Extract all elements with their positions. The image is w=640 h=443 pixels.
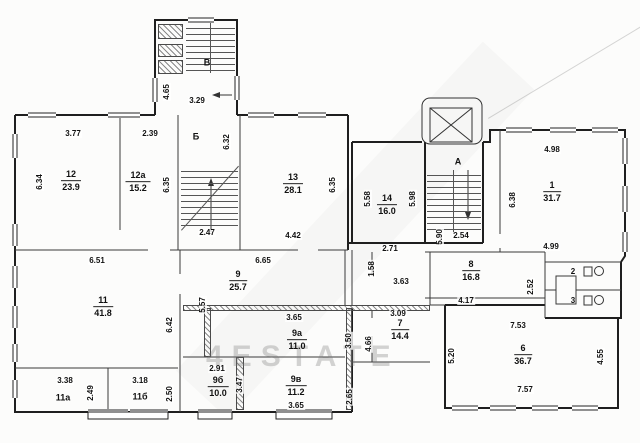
- room-number: 8: [462, 259, 480, 271]
- dim-label: 1.58: [368, 260, 376, 278]
- dim-label: 2.52: [527, 278, 535, 296]
- dim-label: 2.54: [452, 232, 470, 240]
- room-label-11b: 11б: [132, 393, 147, 402]
- dim-label: 6.42: [166, 316, 174, 334]
- room-number: 14: [377, 193, 397, 205]
- dim-label: 4.99: [542, 243, 560, 251]
- room-number: 7: [391, 318, 409, 330]
- room-area: 11.0: [287, 341, 307, 352]
- room-label-2: 2: [571, 268, 575, 276]
- dim-label: 4.17: [457, 297, 475, 305]
- dim-label: 3.38: [56, 377, 74, 385]
- room-label-12a: 12а15.2: [125, 170, 150, 194]
- dim-label: 2.49: [87, 384, 95, 402]
- room-number: 9: [229, 269, 247, 281]
- room-number: 9в: [286, 374, 307, 386]
- dim-label: 2.39: [141, 130, 159, 138]
- dim-label: 2.47: [198, 229, 216, 237]
- room-label-14: 1416.0: [377, 193, 397, 217]
- dim-label: 5.58: [364, 190, 372, 208]
- room-label-11: 1141.8: [93, 295, 113, 319]
- dim-label: 3.65: [287, 402, 305, 410]
- dim-label: 3.18: [131, 377, 149, 385]
- dim-label: 6.34: [36, 173, 44, 191]
- room-label-9b: 9б10.0: [208, 375, 229, 399]
- dim-label: 7.53: [509, 322, 527, 330]
- dim-label: 7.57: [516, 386, 534, 394]
- room-area: 16.8: [462, 272, 480, 283]
- hatched-wall: [158, 44, 183, 57]
- hatched-wall: [158, 24, 183, 39]
- dim-label: 4.55: [597, 348, 605, 366]
- stairwell-label-b: Б: [193, 133, 199, 142]
- dim-label: 3.47: [236, 376, 244, 394]
- room-area: 36.7: [514, 356, 532, 367]
- room-label-6: 636.7: [514, 343, 532, 367]
- room-area: 28.1: [283, 185, 303, 196]
- stairwell-label-a: А: [455, 158, 462, 167]
- room-number: 9б: [208, 375, 229, 387]
- floor-plan: 4ESTATE В Б А 1223.9 12а15.2 1328.1 1416…: [0, 0, 640, 443]
- room-area: 11.2: [286, 387, 307, 398]
- dim-label: 2.50: [166, 385, 174, 403]
- dim-label: 2.71: [381, 245, 399, 253]
- stairs-a: [427, 170, 481, 234]
- stairs-a-divider: [453, 170, 454, 234]
- dim-label: 3.65: [285, 314, 303, 322]
- dim-label: 2.91: [208, 365, 226, 373]
- room-area: 25.7: [229, 282, 247, 293]
- dim-label: 5.57: [199, 296, 207, 314]
- floorplan-geometry: [0, 0, 640, 443]
- room-label-12: 1223.9: [61, 169, 81, 193]
- dim-label: 6.65: [254, 257, 272, 265]
- dim-label: 2.65: [346, 388, 354, 406]
- room-label-11a: 11а: [56, 394, 71, 403]
- room-number: 12а: [125, 170, 150, 182]
- room-label-3: 3: [571, 297, 575, 305]
- room-label-1: 131.7: [543, 180, 561, 204]
- room-number: 6: [514, 343, 532, 355]
- room-label-9a: 9а11.0: [287, 328, 307, 352]
- dim-label: 3.29: [188, 97, 206, 105]
- room-area: 10.0: [208, 388, 229, 399]
- room-area: 15.2: [125, 183, 150, 194]
- room-number: 13: [283, 172, 303, 184]
- dim-label: 6.51: [88, 257, 106, 265]
- dim-label: 6.35: [329, 176, 337, 194]
- dim-label: 5.98: [409, 190, 417, 208]
- dim-label: 3.50: [345, 332, 353, 350]
- hatched-wall: [158, 60, 183, 74]
- room-number: 9а: [287, 328, 307, 340]
- dim-label: 5.20: [448, 347, 456, 365]
- dim-label: 6.38: [509, 191, 517, 209]
- dim-label: 3.77: [64, 130, 82, 138]
- room-area: 16.0: [377, 206, 397, 217]
- dim-label: 5.90: [436, 228, 444, 246]
- room-label-9v: 9в11.2: [286, 374, 307, 398]
- room-number: 12: [61, 169, 81, 181]
- dim-label: 4.42: [284, 232, 302, 240]
- room-label-9: 925.7: [229, 269, 247, 293]
- dim-label: 3.09: [389, 310, 407, 318]
- stairwell-label-v: В: [204, 59, 211, 68]
- room-label-13: 1328.1: [283, 172, 303, 196]
- dim-label: 6.32: [223, 133, 231, 151]
- room-area: 14.4: [391, 331, 409, 342]
- toilet-icons: [584, 267, 604, 306]
- room-area: 23.9: [61, 182, 81, 193]
- room-area: 31.7: [543, 193, 561, 204]
- dim-label: 4.65: [163, 83, 171, 101]
- dim-label: 3.63: [392, 278, 410, 286]
- room-area: 41.8: [93, 308, 113, 319]
- room-number: 1: [543, 180, 561, 192]
- room-label-8: 816.8: [462, 259, 480, 283]
- dim-label: 6.35: [163, 176, 171, 194]
- dim-label: 4.98: [543, 146, 561, 154]
- elevator-shaft: [422, 98, 482, 144]
- room-label-7: 714.4: [391, 318, 409, 342]
- room-number: 11: [93, 295, 113, 307]
- dim-label: 4.66: [365, 335, 373, 353]
